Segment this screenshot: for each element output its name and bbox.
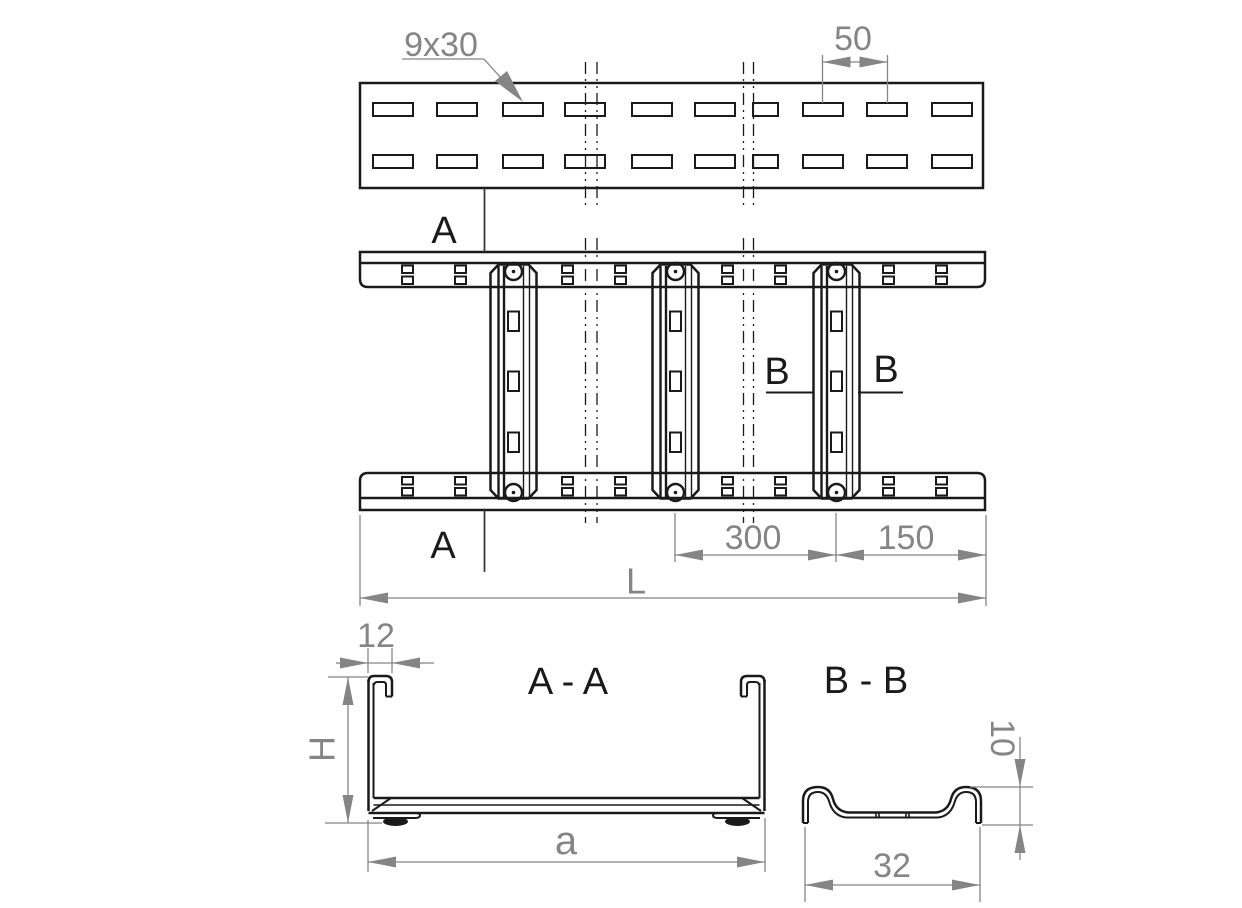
slot-row-lower xyxy=(373,155,972,168)
section-aa-title: A - A xyxy=(528,661,609,703)
aa-floor xyxy=(369,798,765,813)
slot-size-label: 9x30 xyxy=(404,26,478,64)
dim-inner-width: a xyxy=(555,819,578,863)
dim-rung-spacing: 300 xyxy=(725,519,782,557)
dim-height: H xyxy=(302,736,343,762)
dim-lip-width: 12 xyxy=(357,617,395,655)
rung-3 xyxy=(814,263,860,501)
plan-top-rail xyxy=(360,252,985,287)
cut-a-label-bottom: A xyxy=(430,525,456,567)
cut-b-label-left: B xyxy=(764,351,789,393)
aa-right-wall xyxy=(741,676,765,811)
slot-pitch-value: 50 xyxy=(834,20,872,58)
top-view-rail-elevation: 9x30 50 xyxy=(360,20,983,205)
drawing-canvas: 9x30 50 xyxy=(0,0,1242,908)
dim-total-length: L xyxy=(626,561,646,602)
rung-1 xyxy=(491,263,537,501)
aa-width-dimension: a xyxy=(368,818,765,872)
rail-outline xyxy=(360,83,983,188)
section-cut-a: A A xyxy=(430,188,484,572)
dim-end-distance: 150 xyxy=(878,519,935,557)
cut-b-label-right: B xyxy=(873,349,898,391)
aa-left-wall xyxy=(369,676,393,811)
plan-bottom-rail xyxy=(360,473,985,510)
bb-width-dimension: 32 xyxy=(805,827,980,902)
section-bb-view: B - B 10 32 xyxy=(803,660,1033,902)
slot-size-callout: 9x30 xyxy=(402,26,523,102)
aa-height-dimension: H xyxy=(302,677,383,823)
rung-spacing-dimensions: 300 150 xyxy=(675,513,986,606)
section-bb-title: B - B xyxy=(824,660,908,702)
slot-row-upper xyxy=(373,103,972,116)
rung-2 xyxy=(653,263,699,501)
section-aa-view: A - A xyxy=(302,617,766,872)
top-rail-perforations xyxy=(402,266,947,285)
cut-a-label-top: A xyxy=(431,210,457,252)
cable-ladder-drawing: 9x30 50 xyxy=(0,0,1242,908)
dim-profile-height: 10 xyxy=(983,719,1021,757)
bb-rung-profile xyxy=(803,787,981,823)
plan-view-ladder: A A B B 300 150 xyxy=(360,188,986,606)
slot-pitch-dimension: 50 xyxy=(823,20,888,103)
dim-profile-width: 32 xyxy=(873,847,911,885)
rungs xyxy=(491,263,860,501)
aa-lip-dimension: 12 xyxy=(336,617,434,673)
